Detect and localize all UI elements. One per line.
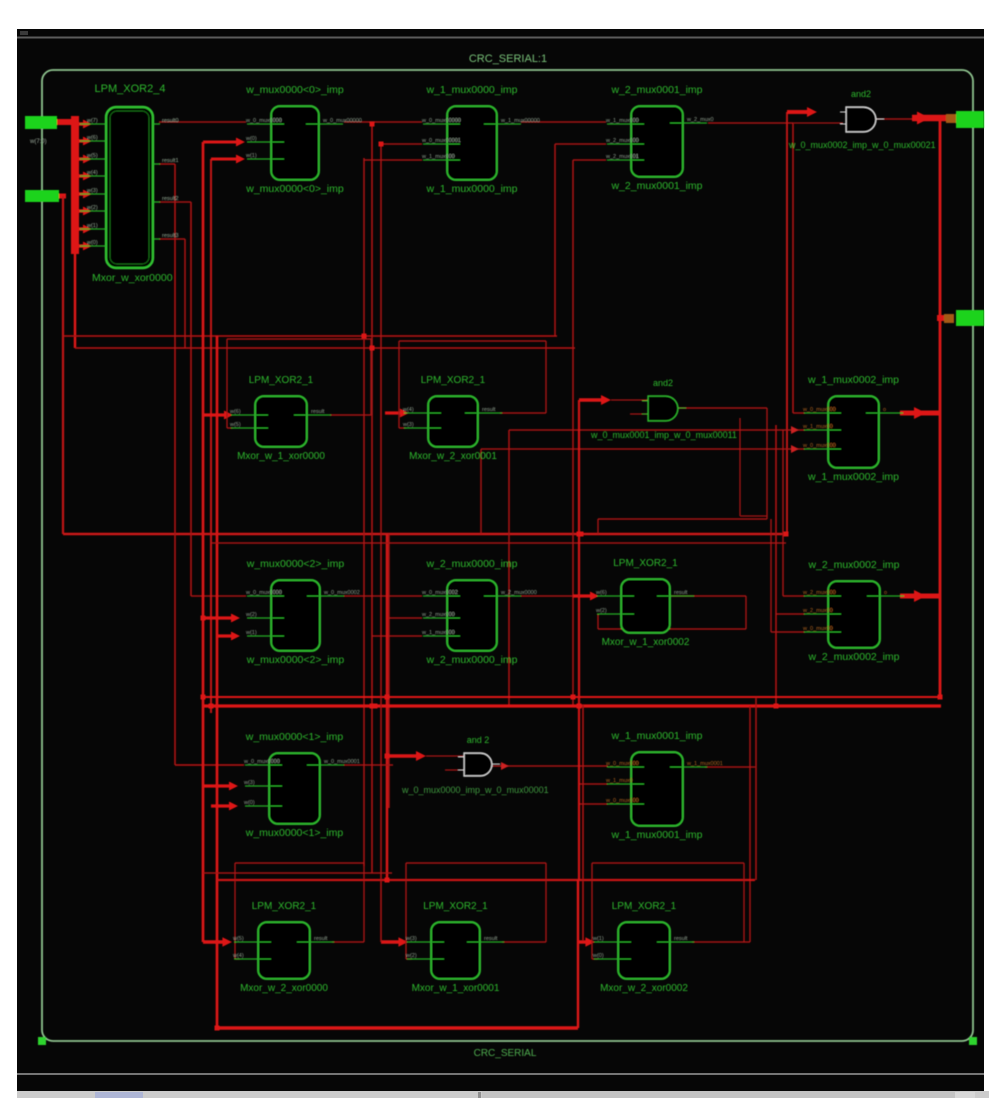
svg-text:w(6): w(6) (595, 590, 607, 596)
svg-text:result1: result1 (162, 158, 179, 164)
svg-text:w(3): w(3) (402, 422, 414, 428)
svg-text:result: result (482, 407, 496, 413)
svg-text:w_2_mux000: w_2_mux000 (605, 138, 639, 144)
svg-text:CRC_SERIAL: CRC_SERIAL (474, 1048, 537, 1059)
svg-text:Mxor_w_xor0000: Mxor_w_xor0000 (92, 272, 173, 284)
svg-text:w(1): w(1) (245, 153, 257, 159)
svg-text:w_0_mux0001: w_0_mux0001 (323, 759, 360, 765)
svg-text:and2: and2 (653, 378, 673, 388)
svg-text:w_1_mux0: w_1_mux0 (605, 778, 633, 784)
svg-text:LPM_XOR2_1: LPM_XOR2_1 (423, 901, 488, 912)
svg-text:w_0_mux0002: w_0_mux0002 (421, 590, 458, 596)
svg-text:result: result (311, 409, 325, 415)
svg-text:w(7:0): w(7:0) (29, 139, 47, 145)
svg-text:w_0_mux000: w_0_mux000 (802, 443, 836, 449)
svg-text:w_2_mux0: w_2_mux0 (686, 117, 714, 123)
svg-text:w(5): w(5) (232, 936, 244, 942)
svg-text:w(1): w(1) (592, 936, 604, 942)
svg-text:w(7): w(7) (86, 118, 98, 124)
svg-text:w_2_mux000: w_2_mux000 (802, 590, 836, 596)
svg-text:w(5): w(5) (86, 153, 98, 159)
svg-text:result: result (484, 936, 498, 942)
svg-text:w_2_mux0001_imp: w_2_mux0001_imp (610, 84, 702, 96)
svg-text:w_0_mux00: w_0_mux00 (802, 626, 833, 632)
svg-text:w(2): w(2) (595, 608, 607, 614)
svg-text:w_0_mux0000: w_0_mux0000 (243, 759, 280, 765)
svg-text:w(3): w(3) (86, 188, 98, 194)
svg-text:Mxor_w_2_xor0002: Mxor_w_2_xor0002 (600, 983, 688, 994)
svg-text:w_0_mux000: w_0_mux000 (605, 798, 639, 804)
svg-text:w(2): w(2) (245, 612, 257, 618)
svg-text:w_1_mux0001_imp: w_1_mux0001_imp (610, 829, 702, 841)
svg-text:and 2: and 2 (467, 735, 490, 745)
svg-text:w_2_mux000: w_2_mux000 (421, 612, 455, 618)
svg-text:w_1_mux0000_imp: w_1_mux0000_imp (425, 84, 517, 96)
svg-text:w(0): w(0) (592, 953, 604, 959)
svg-text:w(2): w(2) (405, 953, 417, 959)
svg-text:LPM_XOR2_1: LPM_XOR2_1 (421, 375, 486, 386)
svg-text:w_mux0000<0>_imp: w_mux0000<0>_imp (245, 183, 344, 195)
svg-text:w_2_mux0002_imp: w_2_mux0002_imp (807, 559, 899, 571)
svg-text:w_1_mux0002_imp: w_1_mux0002_imp (807, 374, 899, 386)
svg-text:Mxor_w_2_xor0001: Mxor_w_2_xor0001 (409, 451, 497, 462)
svg-text:w_1_mux0002_imp: w_1_mux0002_imp (807, 471, 899, 483)
svg-text:w(1): w(1) (86, 223, 98, 229)
svg-text:w_1_mux000: w_1_mux000 (421, 630, 455, 636)
svg-text:w_0_mux0002_imp_w_0_mux00021: w_0_mux0002_imp_w_0_mux00021 (788, 140, 936, 150)
svg-text:w_0_mux0000: w_0_mux0000 (245, 118, 282, 124)
svg-text:w_1_mux0000_imp: w_1_mux0000_imp (425, 183, 517, 195)
svg-text:w_1_mux00: w_1_mux00 (802, 424, 833, 430)
svg-text:w_2_mux00: w_2_mux00 (802, 608, 833, 614)
svg-text:result: result (674, 936, 688, 942)
svg-text:result2: result2 (162, 196, 179, 202)
svg-text:w_0_mux00001: w_0_mux00001 (421, 138, 461, 144)
svg-text:LPM_XOR2_1: LPM_XOR2_1 (613, 558, 678, 569)
svg-text:w_2_mux0001_imp: w_2_mux0001_imp (610, 180, 702, 192)
svg-text:w_2_mux0000_imp: w_2_mux0000_imp (425, 654, 517, 666)
svg-text:w_1_mux0001: w_1_mux0001 (686, 761, 723, 767)
svg-text:w_mux0000<0>_imp: w_mux0000<0>_imp (245, 84, 344, 96)
svg-text:w(0): w(0) (243, 800, 255, 806)
svg-text:CRC_SERIAL:1: CRC_SERIAL:1 (469, 53, 547, 65)
svg-text:w(2): w(2) (86, 205, 98, 211)
svg-text:LPM_XOR2_1: LPM_XOR2_1 (252, 901, 317, 912)
svg-text:w(3): w(3) (243, 780, 255, 786)
svg-text:w(3): w(3) (405, 936, 417, 942)
svg-text:w(6): w(6) (86, 135, 98, 141)
svg-text:w(0): w(0) (86, 240, 98, 246)
svg-text:result3: result3 (162, 233, 179, 239)
svg-text:and2: and2 (851, 89, 871, 99)
svg-text:w(0): w(0) (245, 136, 257, 142)
svg-text:w(4): w(4) (232, 953, 244, 959)
svg-text:w_0_mux00000: w_0_mux00000 (421, 118, 461, 124)
svg-text:w_0_mux0002: w_0_mux0002 (323, 590, 360, 596)
svg-text:w_2_mux0000: w_2_mux0000 (500, 590, 537, 596)
svg-text:w_1_mux00000: w_1_mux00000 (500, 118, 540, 124)
svg-text:w(4): w(4) (86, 170, 98, 176)
svg-text:w_1_mux000: w_1_mux000 (421, 154, 455, 160)
svg-text:w_0_mux0001_imp_w_0_mux00011: w_0_mux0001_imp_w_0_mux00011 (590, 430, 737, 440)
svg-text:result: result (314, 936, 328, 942)
svg-text:o: o (883, 407, 886, 413)
svg-text:w_2_mux001: w_2_mux001 (605, 154, 639, 160)
svg-text:w_0_mux0000_imp_w_0_mux00001: w_0_mux0000_imp_w_0_mux00001 (401, 785, 549, 795)
svg-text:w(4): w(4) (402, 407, 414, 413)
svg-text:w_0_mux000: w_0_mux000 (802, 407, 836, 413)
svg-text:w_0_mux0000: w_0_mux0000 (245, 590, 282, 596)
svg-text:LPM_XOR2_1: LPM_XOR2_1 (612, 901, 677, 912)
svg-text:w_1_mux0001_imp: w_1_mux0001_imp (610, 730, 702, 742)
svg-text:w_2_mux0002_imp: w_2_mux0002_imp (807, 651, 899, 663)
svg-text:w_mux0000<2>_imp: w_mux0000<2>_imp (246, 558, 345, 570)
svg-text:result0: result0 (162, 118, 179, 124)
svg-text:w_1_mux000: w_1_mux000 (605, 118, 639, 124)
svg-text:LPM_XOR2_4: LPM_XOR2_4 (95, 83, 166, 95)
svg-text:w_0_mux000: w_0_mux000 (605, 761, 639, 767)
svg-text:w_mux0000<1>_imp: w_mux0000<1>_imp (245, 731, 344, 743)
svg-text:Mxor_w_1_xor0001: Mxor_w_1_xor0001 (412, 983, 500, 994)
svg-text:w_2_mux0000_imp: w_2_mux0000_imp (425, 558, 517, 570)
svg-text:o: o (884, 590, 887, 596)
svg-text:w_0_mux00000: w_0_mux00000 (322, 118, 362, 124)
svg-text:w_mux0000<2>_imp: w_mux0000<2>_imp (246, 654, 345, 666)
svg-text:result: result (674, 590, 688, 596)
svg-text:w(6): w(6) (229, 409, 241, 415)
svg-text:w(5): w(5) (229, 422, 241, 428)
svg-text:Mxor_w_2_xor0000: Mxor_w_2_xor0000 (240, 983, 328, 994)
svg-text:Mxor_w_1_xor0000: Mxor_w_1_xor0000 (237, 451, 325, 462)
svg-text:Mxor_w_1_xor0002: Mxor_w_1_xor0002 (602, 637, 690, 648)
svg-text:w_mux0000<1>_imp: w_mux0000<1>_imp (245, 827, 344, 839)
svg-text:w(1): w(1) (245, 630, 257, 636)
svg-text:LPM_XOR2_1: LPM_XOR2_1 (249, 375, 314, 386)
